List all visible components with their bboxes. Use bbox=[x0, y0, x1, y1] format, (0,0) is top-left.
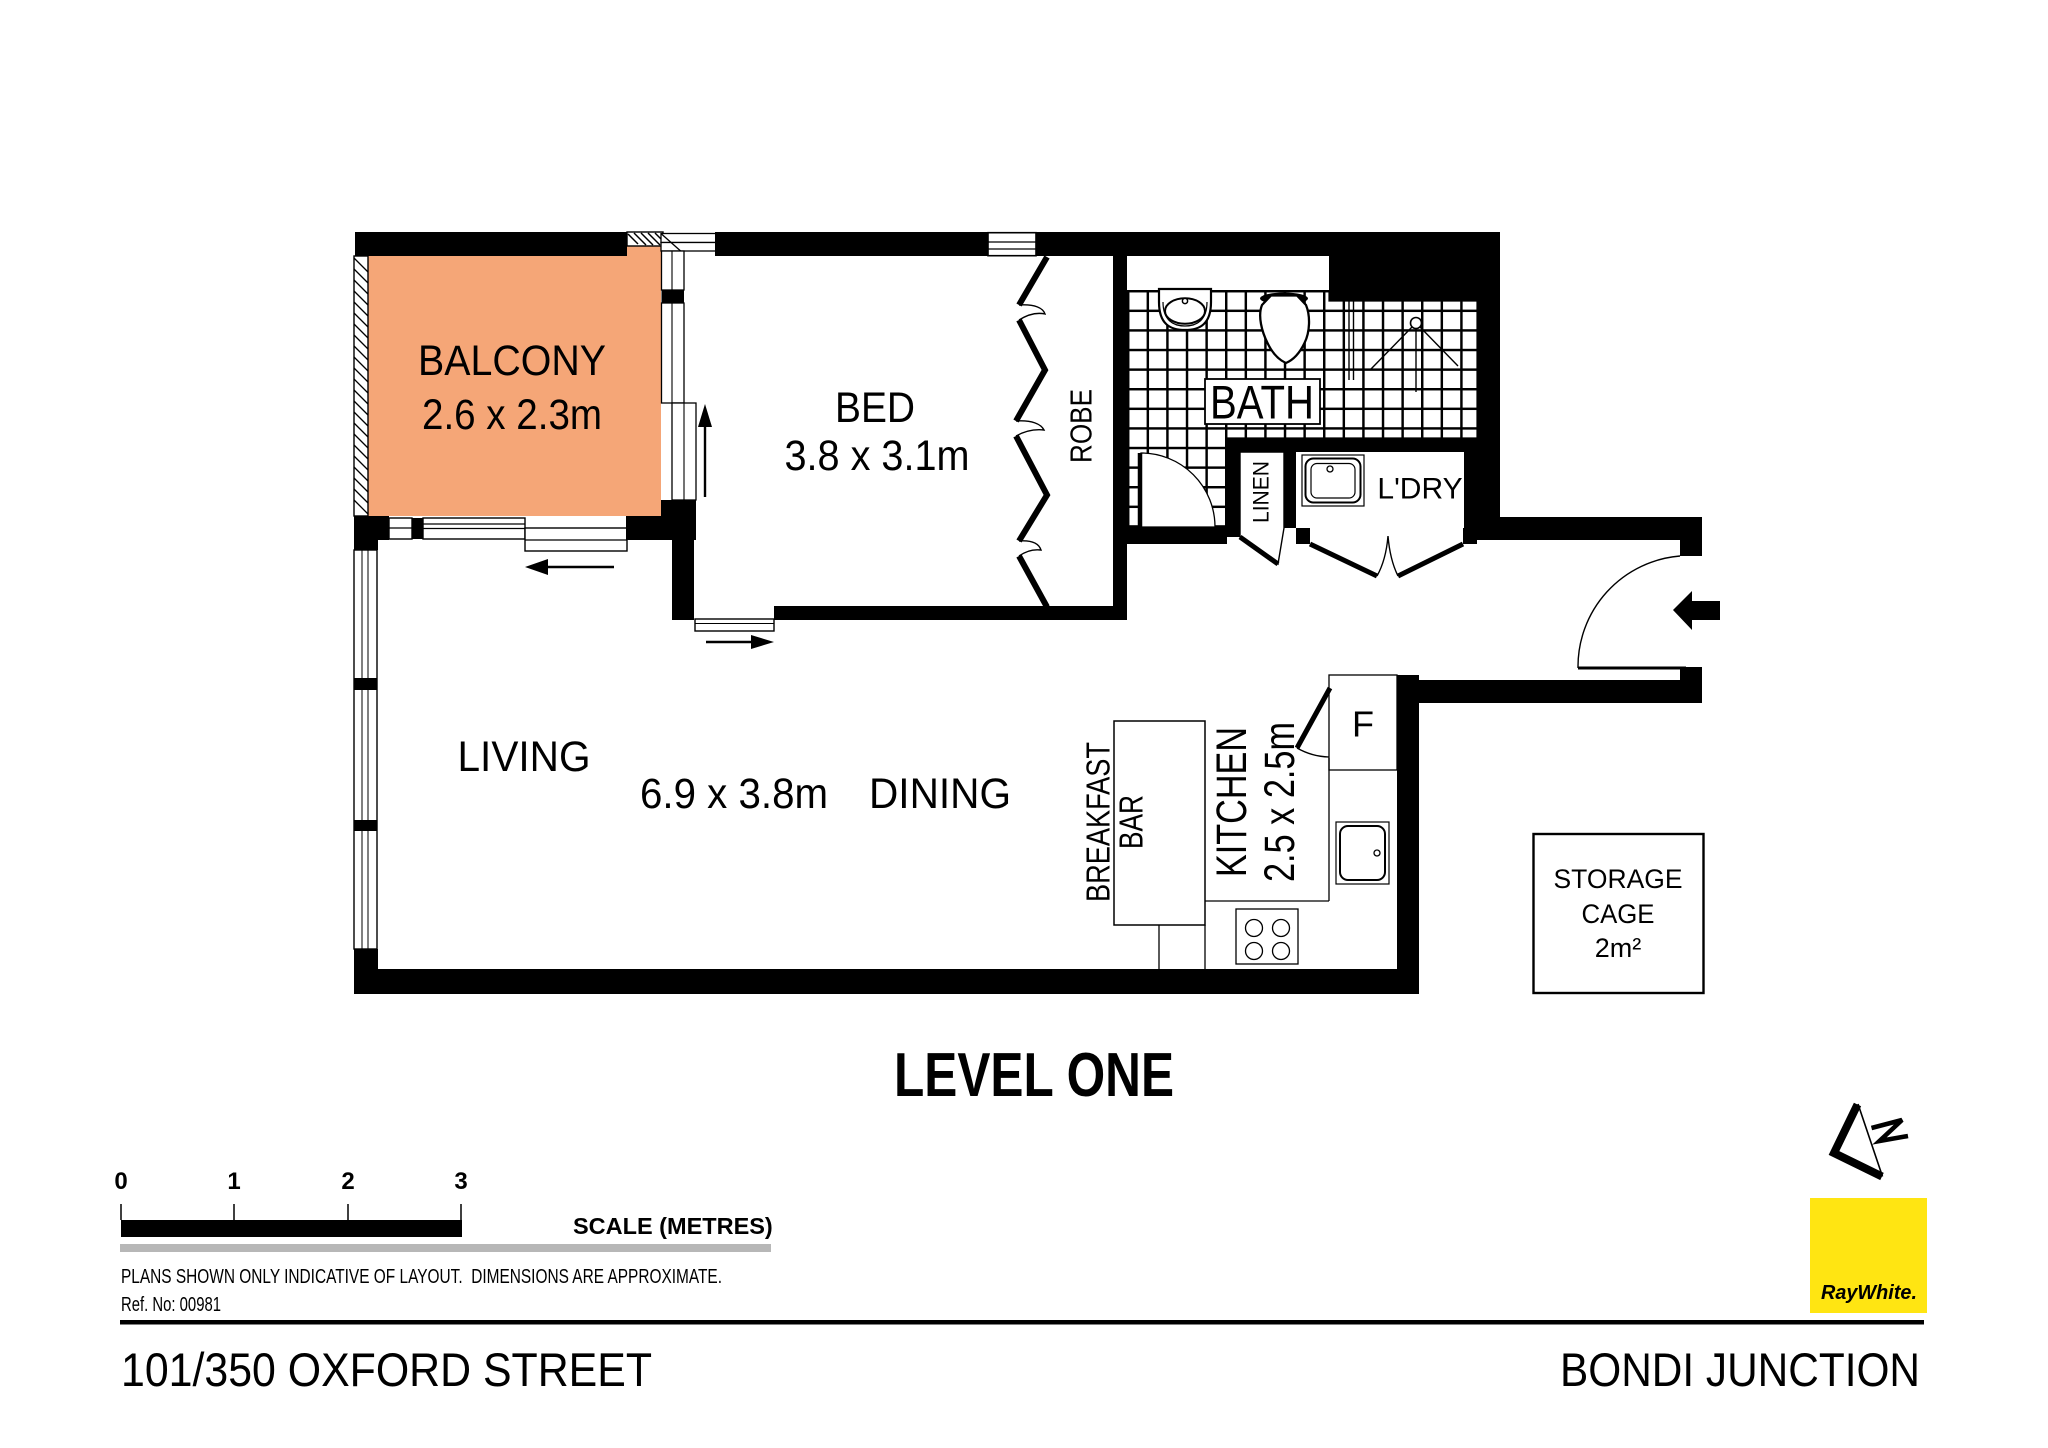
svg-text:BREAKFAST: BREAKFAST bbox=[1080, 742, 1117, 902]
svg-text:3.8 x 3.1m: 3.8 x 3.1m bbox=[785, 432, 970, 480]
svg-text:L'DRY: L'DRY bbox=[1377, 473, 1462, 506]
svg-text:BED: BED bbox=[835, 384, 915, 432]
svg-text:SCALE (METRES): SCALE (METRES) bbox=[573, 1213, 773, 1239]
svg-text:BONDI JUNCTION: BONDI JUNCTION bbox=[1560, 1343, 1920, 1396]
svg-text:F: F bbox=[1352, 704, 1374, 745]
svg-text:STORAGE: STORAGE bbox=[1554, 864, 1683, 894]
svg-text:ROBE: ROBE bbox=[1064, 389, 1099, 463]
svg-text:0: 0 bbox=[114, 1168, 127, 1195]
svg-text:LEVEL ONE: LEVEL ONE bbox=[894, 1041, 1174, 1110]
svg-text:RayWhite.: RayWhite. bbox=[1821, 1282, 1917, 1304]
svg-text:2m²: 2m² bbox=[1595, 933, 1642, 963]
svg-text:KITCHEN: KITCHEN bbox=[1208, 727, 1256, 877]
svg-text:6.9 x 3.8m: 6.9 x 3.8m bbox=[640, 770, 828, 818]
svg-text:Ref. No: 00981: Ref. No: 00981 bbox=[121, 1293, 221, 1316]
svg-text:LINEN: LINEN bbox=[1249, 461, 1274, 523]
svg-text:2.5 x 2.5m: 2.5 x 2.5m bbox=[1256, 722, 1304, 882]
svg-text:BALCONY: BALCONY bbox=[418, 337, 606, 385]
svg-text:1: 1 bbox=[227, 1168, 240, 1195]
svg-text:PLANS SHOWN ONLY INDICATIVE OF: PLANS SHOWN ONLY INDICATIVE OF LAYOUT. D… bbox=[121, 1265, 722, 1288]
svg-text:LIVING: LIVING bbox=[458, 733, 591, 781]
svg-text:2.6 x 2.3m: 2.6 x 2.3m bbox=[422, 391, 602, 439]
svg-text:CAGE: CAGE bbox=[1582, 899, 1655, 929]
svg-text:2: 2 bbox=[341, 1168, 354, 1195]
svg-text:BATH: BATH bbox=[1210, 376, 1314, 429]
svg-text:BAR: BAR bbox=[1113, 795, 1150, 849]
svg-text:101/350 OXFORD STREET: 101/350 OXFORD STREET bbox=[121, 1343, 652, 1396]
svg-text:3: 3 bbox=[454, 1168, 467, 1195]
svg-text:DINING: DINING bbox=[869, 770, 1011, 818]
